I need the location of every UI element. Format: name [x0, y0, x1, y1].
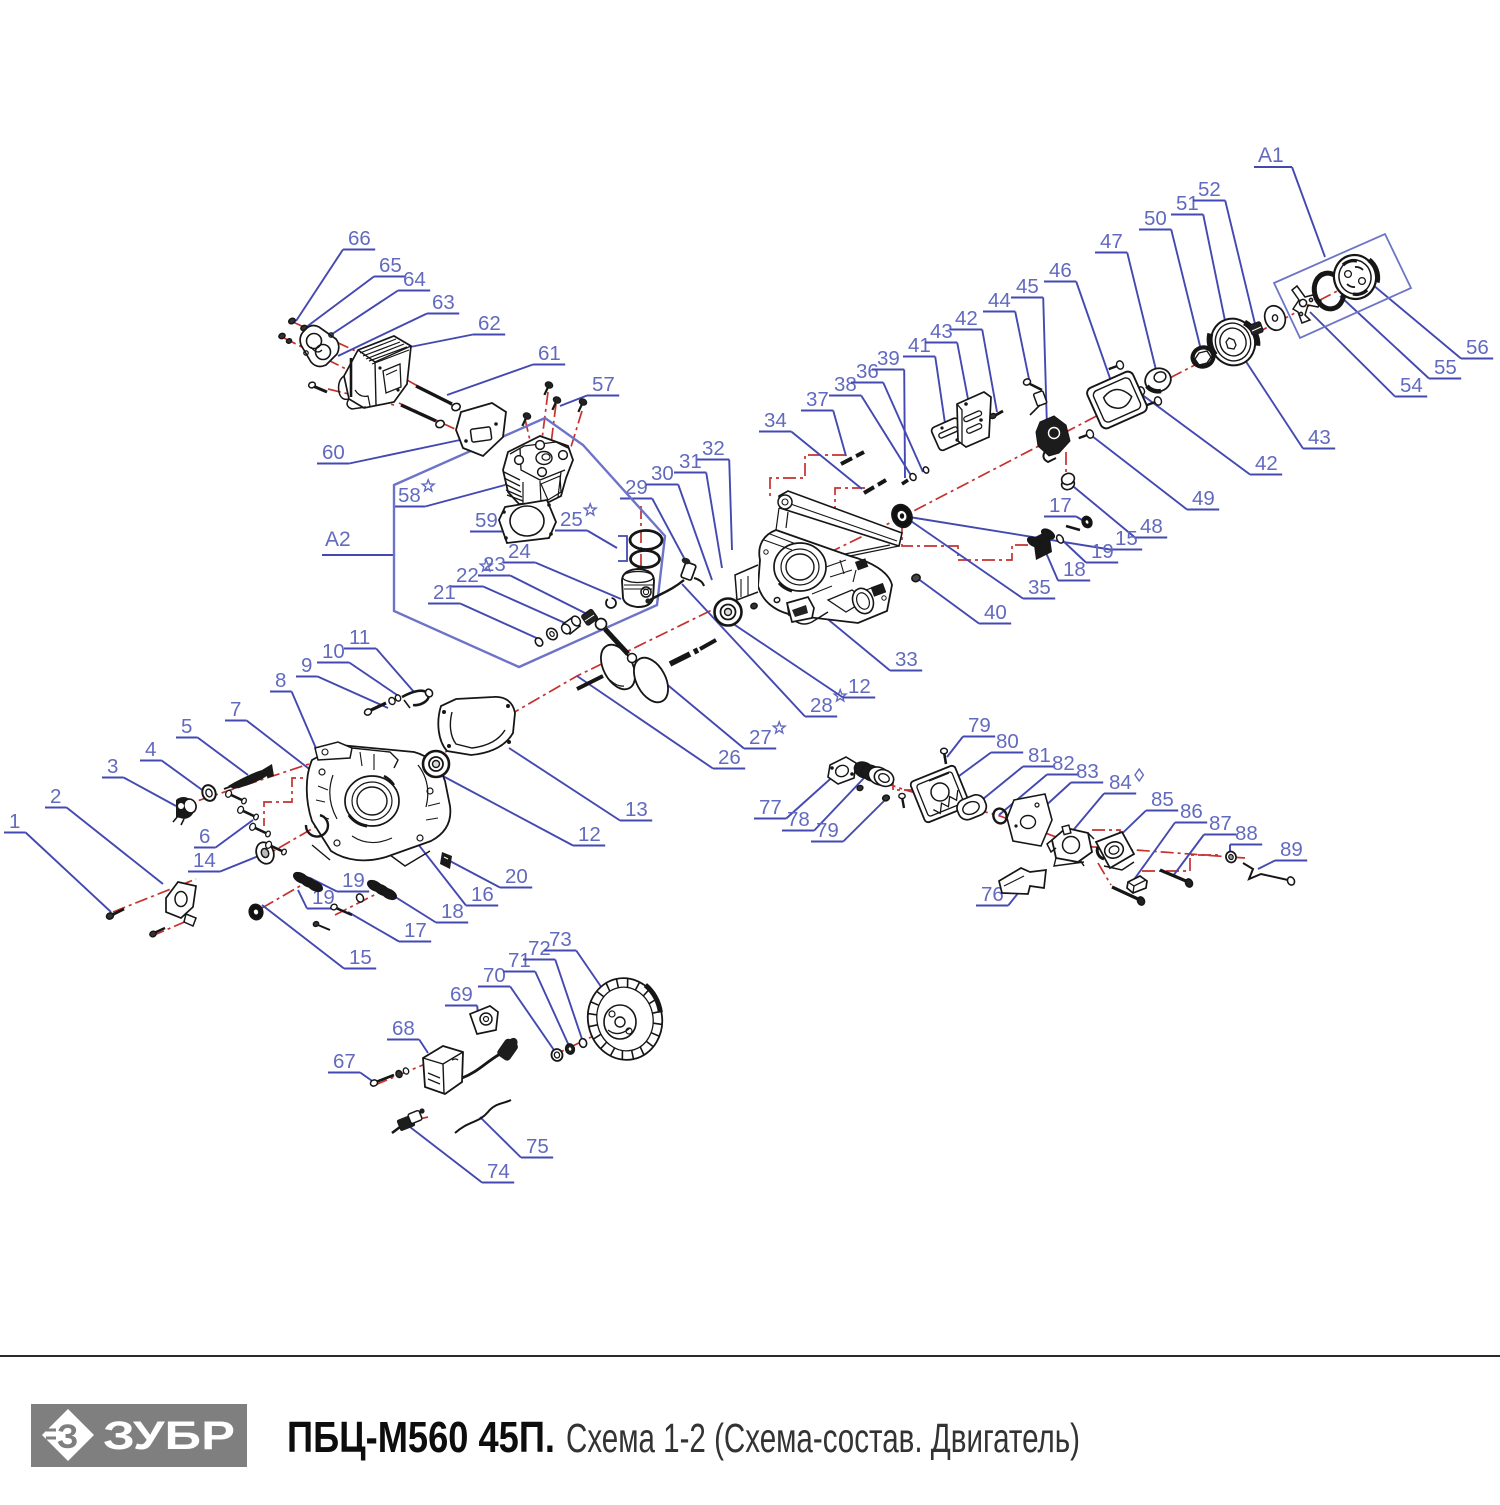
svg-text:75: 75: [526, 1135, 549, 1158]
svg-text:86: 86: [1180, 800, 1203, 823]
svg-text:Схема 1-2 (Схема-состав. Двига: Схема 1-2 (Схема-состав. Двигатель): [566, 1415, 1080, 1461]
svg-text:87: 87: [1209, 812, 1232, 835]
svg-text:61: 61: [538, 342, 561, 365]
svg-text:49: 49: [1192, 487, 1215, 510]
svg-text:83: 83: [1076, 760, 1099, 783]
svg-text:58: 58: [398, 484, 421, 507]
svg-text:47: 47: [1100, 230, 1123, 253]
svg-text:28: 28: [810, 694, 833, 717]
svg-text:46: 46: [1049, 259, 1072, 282]
svg-text:43: 43: [930, 320, 953, 343]
svg-text:65: 65: [379, 254, 402, 277]
svg-text:30: 30: [651, 462, 674, 485]
svg-text:59: 59: [475, 509, 498, 532]
svg-text:19: 19: [1091, 540, 1114, 563]
svg-text:26: 26: [718, 746, 741, 769]
svg-text:79: 79: [968, 714, 991, 737]
svg-text:7: 7: [230, 698, 241, 721]
svg-text:40: 40: [984, 601, 1007, 624]
svg-text:42: 42: [955, 307, 978, 330]
svg-text:25: 25: [560, 508, 583, 531]
svg-text:10: 10: [322, 640, 345, 663]
svg-text:56: 56: [1466, 336, 1489, 359]
svg-text:60: 60: [322, 441, 345, 464]
svg-text:5: 5: [181, 715, 192, 738]
svg-text:89: 89: [1280, 838, 1303, 861]
svg-text:34: 34: [764, 409, 787, 432]
svg-text:50: 50: [1144, 207, 1167, 230]
svg-text:9: 9: [301, 654, 312, 677]
svg-text:13: 13: [625, 798, 648, 821]
svg-text:38: 38: [834, 373, 857, 396]
svg-text:51: 51: [1176, 192, 1199, 215]
svg-text:52: 52: [1198, 178, 1221, 201]
svg-text:32: 32: [702, 437, 725, 460]
svg-text:24: 24: [508, 540, 531, 563]
svg-text:16: 16: [471, 883, 494, 906]
svg-text:1: 1: [9, 810, 20, 833]
svg-text:44: 44: [988, 289, 1011, 312]
svg-text:17: 17: [404, 919, 427, 942]
svg-text:84: 84: [1109, 771, 1132, 794]
svg-text:42: 42: [1255, 452, 1278, 475]
svg-text:20: 20: [505, 865, 528, 888]
svg-text:39: 39: [877, 347, 900, 370]
svg-text:ПБЦ-М560 45П.: ПБЦ-М560 45П.: [287, 1413, 555, 1462]
svg-text:33: 33: [895, 648, 918, 671]
svg-text:23: 23: [483, 553, 506, 576]
svg-text:15: 15: [1115, 527, 1138, 550]
svg-text:21: 21: [433, 581, 456, 604]
svg-text:73: 73: [549, 928, 572, 951]
svg-text:35: 35: [1028, 576, 1051, 599]
svg-text:A2: A2: [325, 528, 351, 551]
svg-text:66: 66: [348, 227, 371, 250]
svg-text:68: 68: [392, 1017, 415, 1040]
svg-text:37: 37: [806, 388, 829, 411]
svg-text:63: 63: [432, 291, 455, 314]
svg-text:72: 72: [528, 937, 551, 960]
svg-text:85: 85: [1151, 788, 1174, 811]
svg-text:18: 18: [441, 900, 464, 923]
svg-text:14: 14: [193, 849, 216, 872]
svg-text:54: 54: [1400, 374, 1423, 397]
svg-text:45: 45: [1016, 275, 1039, 298]
svg-text:77: 77: [759, 796, 782, 819]
svg-text:6: 6: [199, 825, 210, 848]
svg-text:55: 55: [1434, 356, 1457, 379]
svg-text:36: 36: [856, 360, 879, 383]
svg-text:82: 82: [1052, 752, 1075, 775]
svg-text:4: 4: [145, 738, 156, 761]
svg-text:43: 43: [1308, 426, 1331, 449]
svg-text:67: 67: [333, 1050, 356, 1073]
svg-text:11: 11: [349, 626, 370, 649]
svg-text:A1: A1: [1258, 144, 1284, 167]
svg-text:88: 88: [1235, 822, 1258, 845]
svg-text:27: 27: [749, 726, 772, 749]
svg-text:62: 62: [478, 312, 501, 335]
svg-text:19: 19: [342, 869, 365, 892]
svg-text:41: 41: [908, 334, 931, 357]
svg-text:З: З: [57, 1418, 78, 1456]
svg-text:12: 12: [578, 823, 601, 846]
svg-text:15: 15: [349, 946, 372, 969]
svg-text:80: 80: [996, 730, 1019, 753]
svg-text:78: 78: [787, 808, 810, 831]
svg-text:17: 17: [1049, 494, 1072, 517]
svg-text:8: 8: [275, 669, 286, 692]
svg-text:69: 69: [450, 983, 473, 1006]
svg-text:12: 12: [848, 675, 871, 698]
svg-text:48: 48: [1140, 515, 1163, 538]
svg-text:81: 81: [1028, 744, 1051, 767]
svg-text:3: 3: [107, 755, 118, 778]
svg-text:64: 64: [403, 268, 426, 291]
svg-text:79: 79: [816, 819, 839, 842]
svg-text:31: 31: [679, 450, 702, 473]
svg-text:18: 18: [1063, 558, 1086, 581]
svg-text:74: 74: [487, 1160, 510, 1183]
svg-text:57: 57: [592, 373, 615, 396]
svg-text:ЗУБР: ЗУБР: [103, 1414, 235, 1458]
svg-text:2: 2: [50, 785, 61, 808]
svg-text:22: 22: [456, 564, 479, 587]
svg-text:70: 70: [483, 964, 506, 987]
